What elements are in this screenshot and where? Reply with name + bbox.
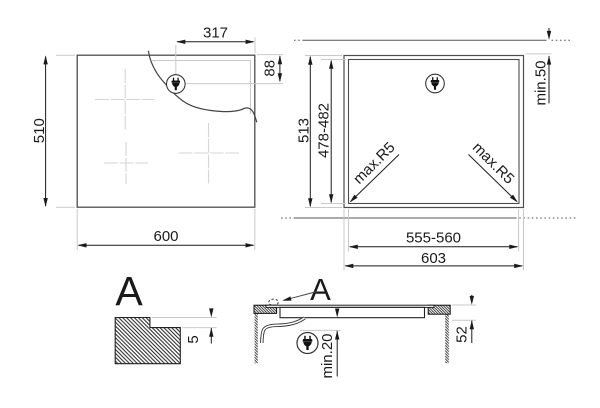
svg-text:A: A (115, 268, 143, 314)
svg-text:600: 600 (153, 228, 178, 245)
svg-text:513: 513 (295, 118, 312, 143)
svg-text:52: 52 (454, 326, 471, 343)
svg-text:A: A (310, 272, 331, 307)
svg-text:510: 510 (31, 118, 48, 143)
svg-text:88: 88 (262, 60, 279, 77)
svg-text:5: 5 (185, 335, 202, 343)
svg-text:555-560: 555-560 (406, 230, 461, 247)
svg-text:317: 317 (203, 25, 228, 42)
svg-text:min.50: min.50 (532, 60, 549, 105)
svg-text:478-482: 478-482 (316, 103, 333, 158)
svg-text:603: 603 (421, 250, 446, 267)
svg-text:min.20: min.20 (319, 333, 336, 378)
